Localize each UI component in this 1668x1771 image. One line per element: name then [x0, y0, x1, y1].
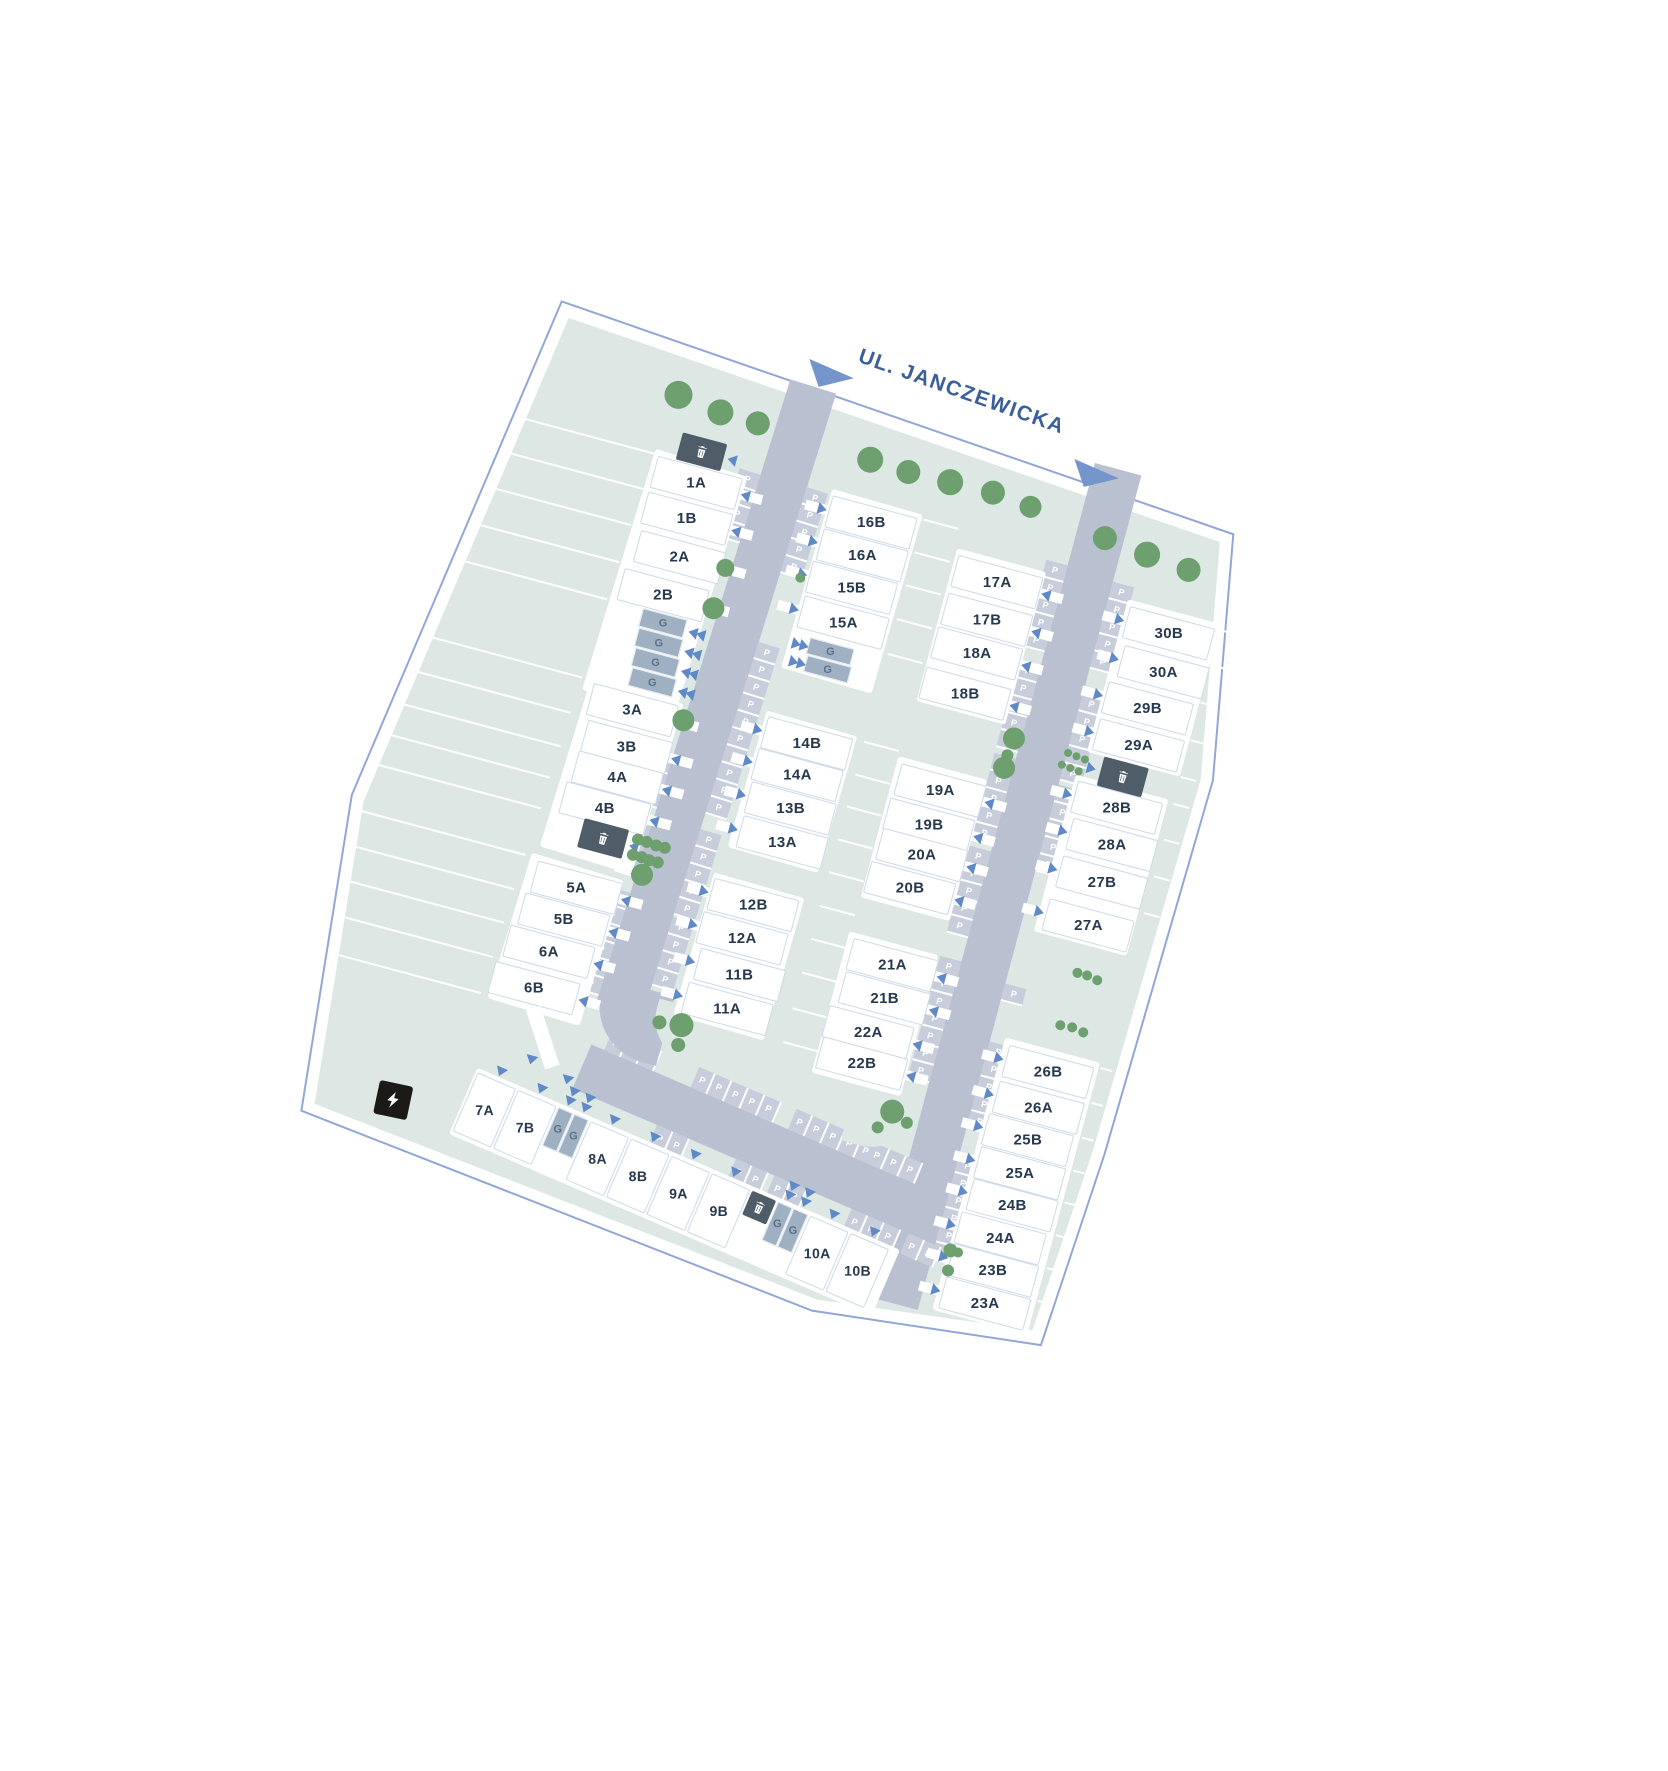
- estate-plan: PPPPPPPPPPPPPPPPPPPPPPPPPPPPPPPPPPPPPPPP…: [224, 271, 1310, 1414]
- house-label: 8A: [588, 1151, 607, 1167]
- house-label: 2A: [670, 548, 690, 565]
- house-label: 20B: [895, 879, 924, 896]
- house-label: 15B: [837, 579, 866, 596]
- garage-label: G: [654, 637, 663, 649]
- house-label: 1B: [677, 510, 697, 527]
- garage-label: G: [553, 1124, 562, 1136]
- house-label: 29A: [1124, 736, 1153, 753]
- house-label: 24A: [986, 1229, 1015, 1246]
- house-label: 4A: [607, 769, 627, 786]
- house-label: 23B: [978, 1262, 1007, 1279]
- garage-label: G: [823, 663, 832, 675]
- house-label: 17A: [983, 573, 1012, 590]
- house-label: 11B: [726, 966, 754, 983]
- house-label: 30B: [1154, 624, 1183, 641]
- house-label: 5B: [554, 911, 574, 928]
- garage-label: G: [648, 676, 657, 688]
- garage-label: G: [659, 617, 668, 629]
- house-label: 22A: [854, 1023, 883, 1040]
- house-label: 6A: [539, 943, 559, 960]
- ev-charger-icon: [373, 1080, 413, 1120]
- house-label: 3B: [617, 738, 637, 755]
- house-label: 18B: [951, 685, 980, 702]
- house-label: 18A: [963, 644, 992, 661]
- house-label: 10B: [844, 1262, 871, 1278]
- house-label: 27B: [1087, 874, 1116, 891]
- house-label: 9B: [709, 1203, 728, 1219]
- house-label: 25B: [1013, 1131, 1042, 1148]
- garage-label: G: [773, 1218, 782, 1230]
- house-label: 12A: [728, 929, 757, 946]
- house-label: 6B: [524, 979, 544, 996]
- house-label: 22B: [847, 1055, 876, 1072]
- house-label: 12B: [739, 896, 768, 913]
- house-label: 10A: [803, 1245, 830, 1261]
- house-label: 8B: [628, 1168, 647, 1184]
- house-label: 2B: [653, 586, 673, 603]
- house-label: 16A: [848, 546, 877, 563]
- house-label: 27A: [1074, 917, 1103, 934]
- garage-label: G: [569, 1130, 578, 1142]
- house-label: 5A: [567, 879, 587, 896]
- house-label: 4B: [595, 799, 615, 816]
- house-label: 14A: [783, 766, 812, 783]
- garage-label: G: [788, 1225, 797, 1237]
- house-label: 26A: [1024, 1099, 1053, 1116]
- house-label: 19A: [926, 782, 955, 799]
- house-label: 1A: [686, 474, 706, 491]
- house-label: 24B: [998, 1196, 1027, 1213]
- house-label: 28A: [1098, 836, 1127, 853]
- house-label: 30A: [1149, 663, 1178, 680]
- house-label: 13A: [768, 834, 797, 851]
- house-label: 25A: [1005, 1164, 1034, 1181]
- house-label: 29B: [1133, 699, 1162, 716]
- site-plan-canvas: PPPPPPPPPPPPPPPPPPPPPPPPPPPPPPPPPPPPPPPP…: [0, 0, 1668, 1771]
- house-label: 19B: [915, 816, 944, 833]
- house-label: 9A: [669, 1185, 688, 1201]
- house-label: 17B: [973, 611, 1002, 628]
- house-label: 21A: [878, 956, 907, 973]
- house-label: 21B: [870, 989, 899, 1006]
- house-label: 3A: [622, 701, 642, 718]
- house-label: 7A: [475, 1102, 494, 1118]
- house-label: 23A: [970, 1295, 999, 1312]
- house-label: 11A: [713, 1000, 741, 1017]
- house-label: 14B: [792, 734, 821, 751]
- house-label: 7B: [515, 1119, 534, 1135]
- garage-label: G: [826, 645, 835, 657]
- garage-label: G: [651, 657, 660, 669]
- house-label: 13B: [776, 799, 805, 816]
- house-label: 26B: [1034, 1063, 1063, 1080]
- house-label: 15A: [829, 614, 858, 631]
- house-label: 28B: [1102, 799, 1131, 816]
- house-label: 20A: [907, 846, 936, 863]
- house-label: 16B: [857, 514, 886, 531]
